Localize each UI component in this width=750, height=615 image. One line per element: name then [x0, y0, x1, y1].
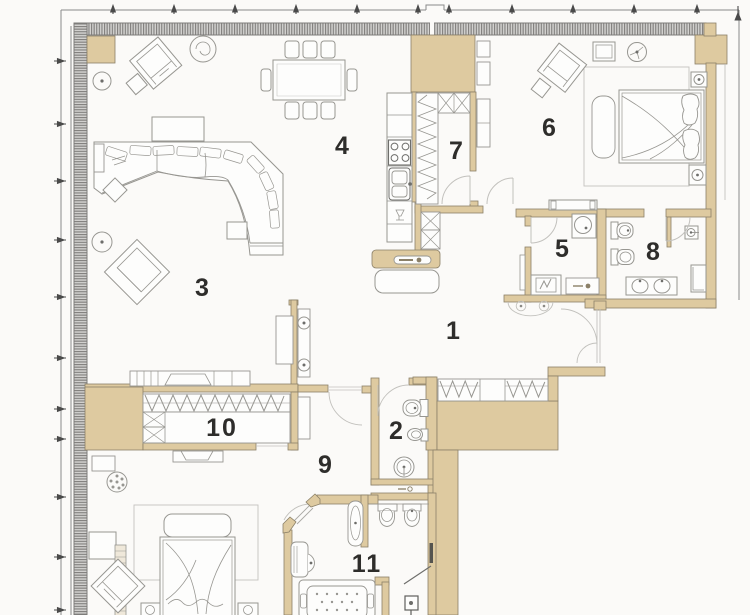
svg-text:10: 10 [206, 414, 238, 442]
svg-text:1: 1 [446, 317, 460, 345]
svg-text:8: 8 [646, 238, 660, 266]
svg-text:5: 5 [555, 235, 569, 263]
svg-text:9: 9 [318, 451, 332, 479]
svg-text:11: 11 [352, 550, 382, 578]
svg-text:6: 6 [542, 114, 556, 142]
svg-text:2: 2 [389, 417, 403, 445]
svg-text:7: 7 [449, 137, 463, 165]
svg-text:4: 4 [335, 132, 349, 160]
svg-text:3: 3 [195, 274, 209, 302]
